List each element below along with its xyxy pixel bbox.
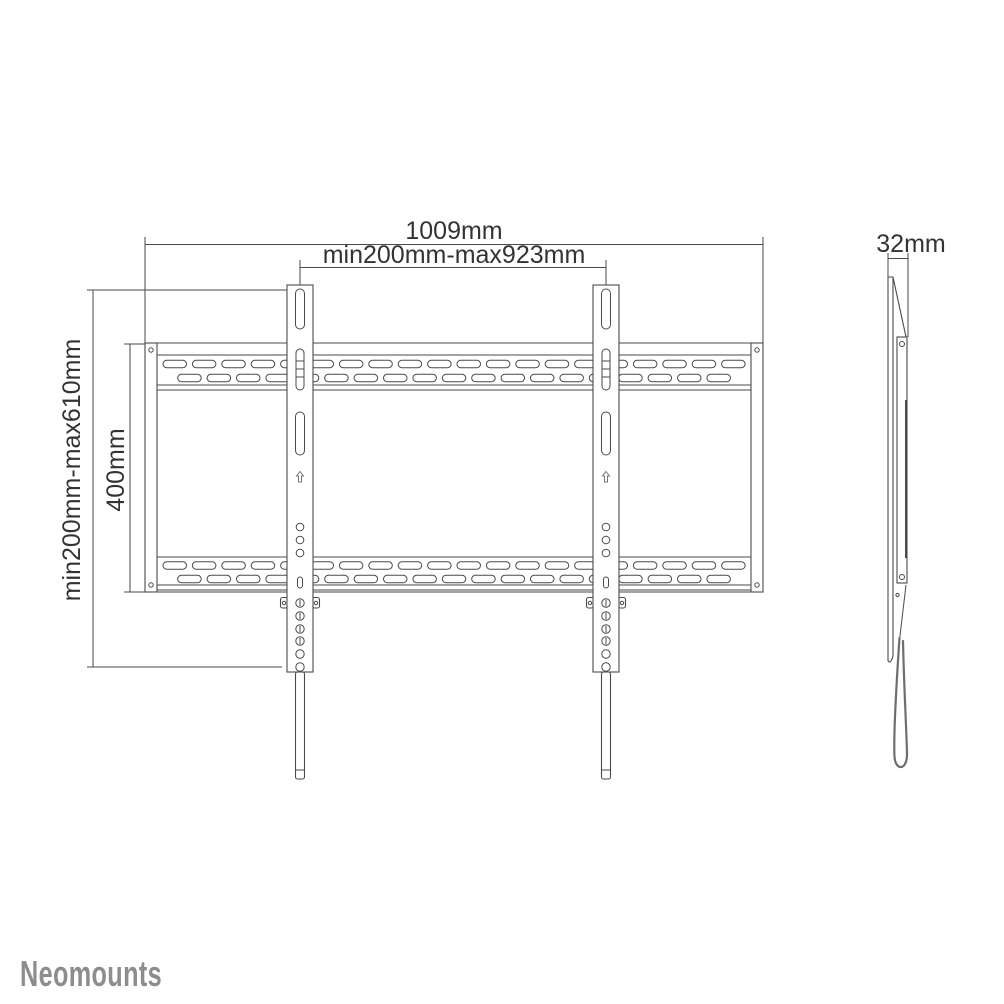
rail-slot [722,360,746,368]
side-plate-hole [900,342,905,347]
rail-slot [619,374,643,382]
flange-left [145,343,157,592]
rail-slot [428,360,452,368]
rail-slot [339,360,363,368]
rail-slot [501,575,524,583]
rail-slot [354,374,378,382]
technical-drawing-page: 1009mm min200mm-max923mm min200mm-max610… [0,0,1004,1004]
flange-hole [149,583,153,587]
rail-slot [442,575,466,583]
rail-slot [192,360,216,368]
rail-slot [472,575,496,583]
rail-slot [266,374,290,382]
rail-slot [633,360,657,368]
rail-slot [384,575,408,583]
top-rail [157,343,751,390]
rail-slot [237,575,261,583]
rail-slot [325,575,349,583]
pull-rod [296,672,305,779]
pull-strap-loop [894,638,907,767]
rail-slot [692,360,716,368]
rail-slot [633,562,657,570]
rail-slot [516,562,540,570]
rail-slot [369,562,393,570]
rail-slot [413,575,437,583]
rail-slot [516,360,540,368]
side-profile [888,277,907,767]
tv-bracket [587,285,626,779]
dim-label-plate-height: 400mm [102,428,130,511]
side-bar-foot [888,656,893,662]
rail-slot [648,575,672,583]
rail-slot [251,360,275,368]
bottom-rail [157,557,751,592]
dim-label-vesa-width: min200mm-max923mm [323,241,586,269]
rail-slot [222,360,246,368]
rail-slot [663,562,687,570]
rail-slot [325,374,349,382]
flange-hole [755,583,759,587]
rail-slot [472,374,496,382]
flange-hole [149,348,153,352]
rail-slot [457,562,481,570]
rail-slot [339,562,363,570]
rail-slot [442,374,466,382]
side-strap-lead [900,585,907,640]
side-plate-hole [900,575,905,580]
rail-slot [266,575,290,583]
rail-slot [163,562,187,570]
tv-brackets [281,285,626,779]
rail-slot [457,360,481,368]
wall-mount-drawing: 1009mm min200mm-max923mm min200mm-max610… [0,0,1004,1004]
dim-label-depth: 32mm [876,230,945,258]
rail-slot [251,562,275,570]
rail-slot [707,575,731,583]
rail-slot [369,360,393,368]
rail-slot [398,360,422,368]
rail-slot [413,374,437,382]
rail-slot [207,575,231,583]
rail-slot [354,575,378,583]
rail-slot [678,374,702,382]
rail-slot-pattern [163,360,745,583]
rail-slot [560,374,584,382]
rail-slot [663,360,687,368]
rail-slot [722,562,746,570]
rail-slot [384,374,408,382]
rail-slot [192,562,216,570]
side-hook [888,277,906,337]
rail-slot [648,374,672,382]
tv-bracket [281,285,320,779]
flange-right [751,343,763,592]
rail-slot [545,360,569,368]
rail-slot [486,562,510,570]
rail-slot [545,562,569,570]
rail-slot [486,360,510,368]
rail-slot [707,374,731,382]
rail-slot [163,360,187,368]
rail-slot [619,575,643,583]
rail-slot [207,374,231,382]
dim-label-vesa-height: min200mm-max610mm [58,339,86,602]
side-bar-hole [896,593,899,596]
pull-rod [602,672,611,779]
rail-slot [178,374,202,382]
rail-slot [501,374,524,382]
rail-slot [560,575,584,583]
rail-slot [178,575,202,583]
rail-slot [398,562,422,570]
side-view: 32mm [876,230,945,767]
rail-slot [692,562,716,570]
rail-slot [222,562,246,570]
rail-slot [531,575,555,583]
flange-hole [755,348,759,352]
wall-plate-front-view [145,343,763,592]
rail-slot [237,374,261,382]
rail-slot [531,374,555,382]
rail-slot [428,562,452,570]
rail-slot [678,575,702,583]
front-view-dimensions: 1009mm min200mm-max923mm min200mm-max610… [58,217,763,667]
neomounts-logo: Neomounts [20,953,162,994]
